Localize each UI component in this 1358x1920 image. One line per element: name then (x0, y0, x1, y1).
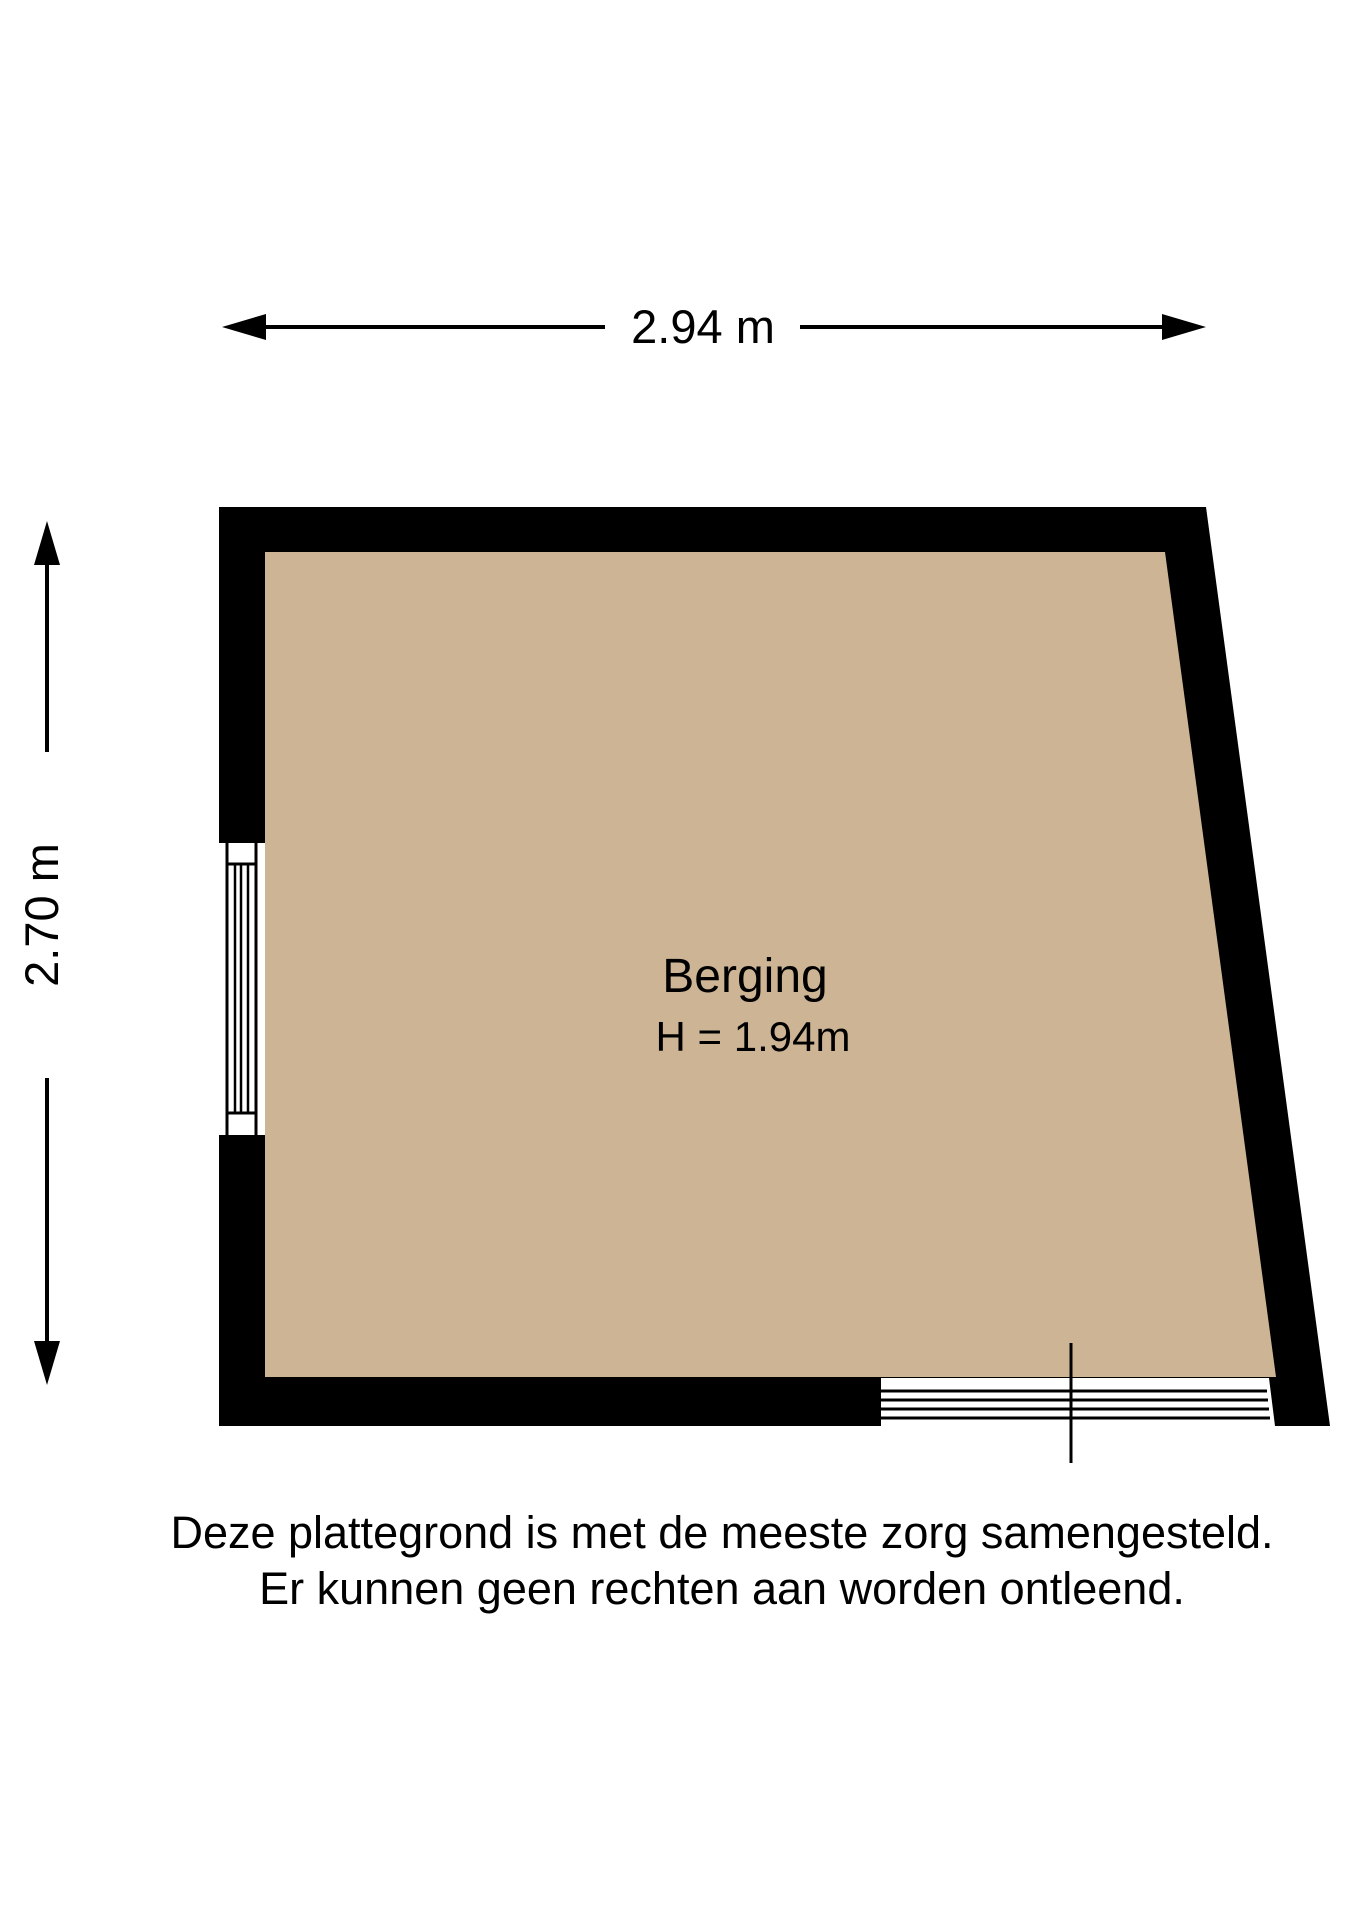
disclaimer-line-2: Er kunnen geen rechten aan worden ontlee… (259, 1563, 1185, 1614)
arrow-up-icon (34, 521, 60, 565)
arrow-right-icon (1162, 314, 1206, 340)
bottom-window (881, 1378, 1275, 1426)
floorplan-page: 2.94 m 2.70 m (0, 0, 1358, 1920)
room-name-label: Berging (662, 950, 827, 1003)
height-dimension-label: 2.70 m (15, 843, 68, 987)
top-dimension: 2.94 m (222, 300, 1206, 353)
room-height-label: H = 1.94m (656, 1013, 851, 1060)
arrow-down-icon (34, 1341, 60, 1385)
arrow-left-icon (222, 314, 266, 340)
left-dimension: 2.70 m (15, 521, 68, 1385)
left-window (219, 843, 265, 1135)
floorplan-svg: 2.94 m 2.70 m (0, 0, 1358, 1920)
disclaimer-line-1: Deze plattegrond is met de meeste zorg s… (170, 1507, 1273, 1558)
width-dimension-label: 2.94 m (631, 300, 775, 353)
